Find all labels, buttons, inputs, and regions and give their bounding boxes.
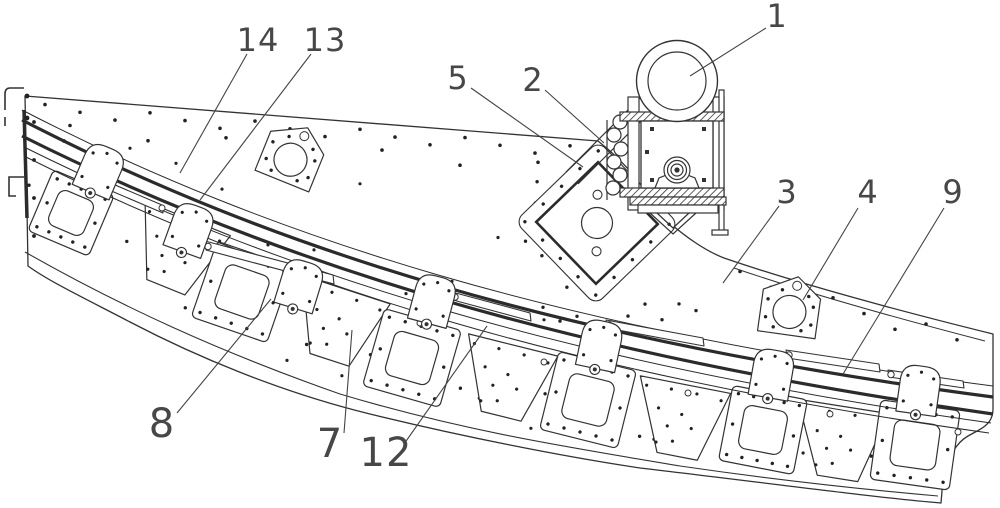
rivet-dot [174,162,177,165]
callout-2: 2 [522,61,604,143]
callout-label: 5 [447,59,468,97]
rivet-dot [536,161,540,165]
callout-label: 2 [522,61,543,99]
rivet-dot [125,240,128,243]
left-hook-bottom [9,177,24,196]
left-hook-top [5,88,24,126]
rivet-dot [524,240,527,243]
rivet-dot [128,147,131,150]
rivet-dot [113,118,117,122]
rivet-dot [358,182,361,185]
callout-label: 14 [237,21,280,59]
base-support [638,205,718,213]
rail-bolt [159,205,165,211]
rivet-dot [638,435,641,438]
rivet-dot [568,144,572,148]
rail-bolt [955,429,961,435]
bearing-center [674,167,679,172]
rivet-dot [68,124,72,128]
rivet-dot [184,306,187,309]
rivet-dot [32,196,36,200]
rivet-dot [218,127,222,131]
rivet-dot [78,111,82,115]
rivet-dot [529,427,532,430]
rivet-dot [285,359,288,362]
rivet-dot [305,343,308,346]
base-plate [630,197,726,205]
rivet-dot [25,94,30,99]
rivet-dot [380,148,384,152]
rivet-dot [558,319,561,322]
rivet-dot [43,103,47,107]
leader-line [803,208,858,300]
callout-label: 3 [776,173,797,211]
rivet-dot [25,116,30,121]
rivet-dot [148,111,152,115]
callout-label: 12 [360,430,413,476]
rivet-dot [565,286,568,289]
rivet-dot [428,143,432,147]
rivet-dot [463,136,467,140]
rivet-dot [220,188,223,191]
rail-bolt [685,390,691,396]
rail-bolt [541,359,547,365]
rivet-dot [541,306,544,309]
rivet-dot [533,151,537,155]
rivet-dot [802,451,805,454]
leader-line [545,90,604,143]
rivet-dot [459,387,462,390]
plate-window [737,404,789,456]
rivet-dot [32,120,36,124]
patent-drawing: 12513143498712 [0,0,1000,508]
rivet-dot [540,254,543,257]
rivet-dot [358,128,362,132]
frame-post-tall [719,90,724,232]
callout-label: 7 [317,421,343,467]
rivet-dot [660,318,663,321]
rivet-dot [575,315,578,318]
rivet-dot [831,296,835,300]
rivet-dot [542,318,545,321]
rivet-dot [498,144,502,148]
rivet-dot [340,374,343,377]
rivet-dot [643,302,646,305]
callout-label: 1 [766,0,787,35]
slat-hook [888,371,894,377]
rivet-dot [955,338,959,342]
callout-label: 13 [304,21,347,59]
rivet-dot [496,236,499,239]
rivet-dot [893,328,897,332]
rivet-dot [27,184,30,187]
rivet-dot [404,292,407,295]
rivet-dot [253,119,257,123]
callout-label: 8 [149,401,175,447]
callout-label: 4 [857,173,878,211]
rivet-dot [183,119,187,123]
rivet-dot [458,163,462,167]
rivet-dot [543,392,546,395]
rivet-dot [146,139,150,143]
rivet-dot [677,302,680,305]
rail-bolt [827,411,833,417]
rivet-dot [924,322,928,326]
frame-bar-bottom [620,188,724,197]
rivet-dot [323,135,327,139]
figure-canvas: 12513143498712 [0,0,1000,508]
rivet-dot [224,136,228,140]
rivet-dot [32,234,36,238]
motor-cylinder-outer [637,41,718,122]
plate-window [889,419,941,471]
rivet-dot [535,180,538,183]
rivet-dot [626,314,629,317]
rivet-dot [862,312,866,316]
frame-foot [712,230,728,235]
callout-label: 9 [942,173,963,211]
rivet-dot [312,248,315,251]
rivet-dot [694,309,697,312]
rivet-dot [738,270,742,274]
callout-4: 4 [803,173,879,300]
rivet-dot [393,135,397,139]
